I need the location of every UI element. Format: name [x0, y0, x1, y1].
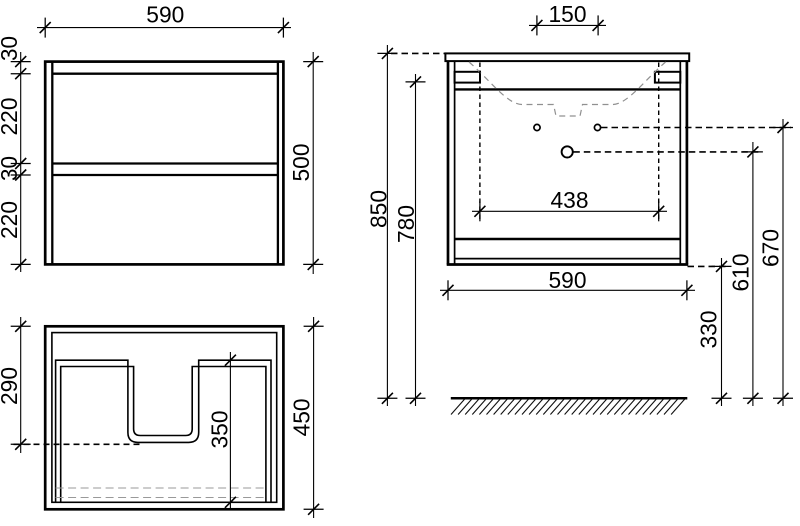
svg-text:670: 670 — [758, 229, 784, 267]
svg-text:780: 780 — [393, 205, 419, 243]
svg-text:450: 450 — [289, 398, 315, 436]
svg-text:290: 290 — [0, 367, 22, 405]
svg-text:438: 438 — [551, 187, 589, 213]
svg-text:850: 850 — [366, 190, 392, 228]
svg-text:330: 330 — [696, 311, 722, 349]
svg-text:610: 610 — [728, 254, 754, 292]
svg-text:220: 220 — [0, 98, 22, 136]
svg-text:220: 220 — [0, 201, 22, 239]
svg-text:30: 30 — [0, 36, 22, 61]
svg-text:590: 590 — [549, 267, 587, 293]
svg-text:590: 590 — [146, 2, 184, 28]
svg-text:500: 500 — [288, 144, 314, 182]
svg-text:30: 30 — [0, 156, 22, 181]
svg-text:350: 350 — [207, 411, 233, 449]
svg-text:150: 150 — [549, 1, 587, 27]
